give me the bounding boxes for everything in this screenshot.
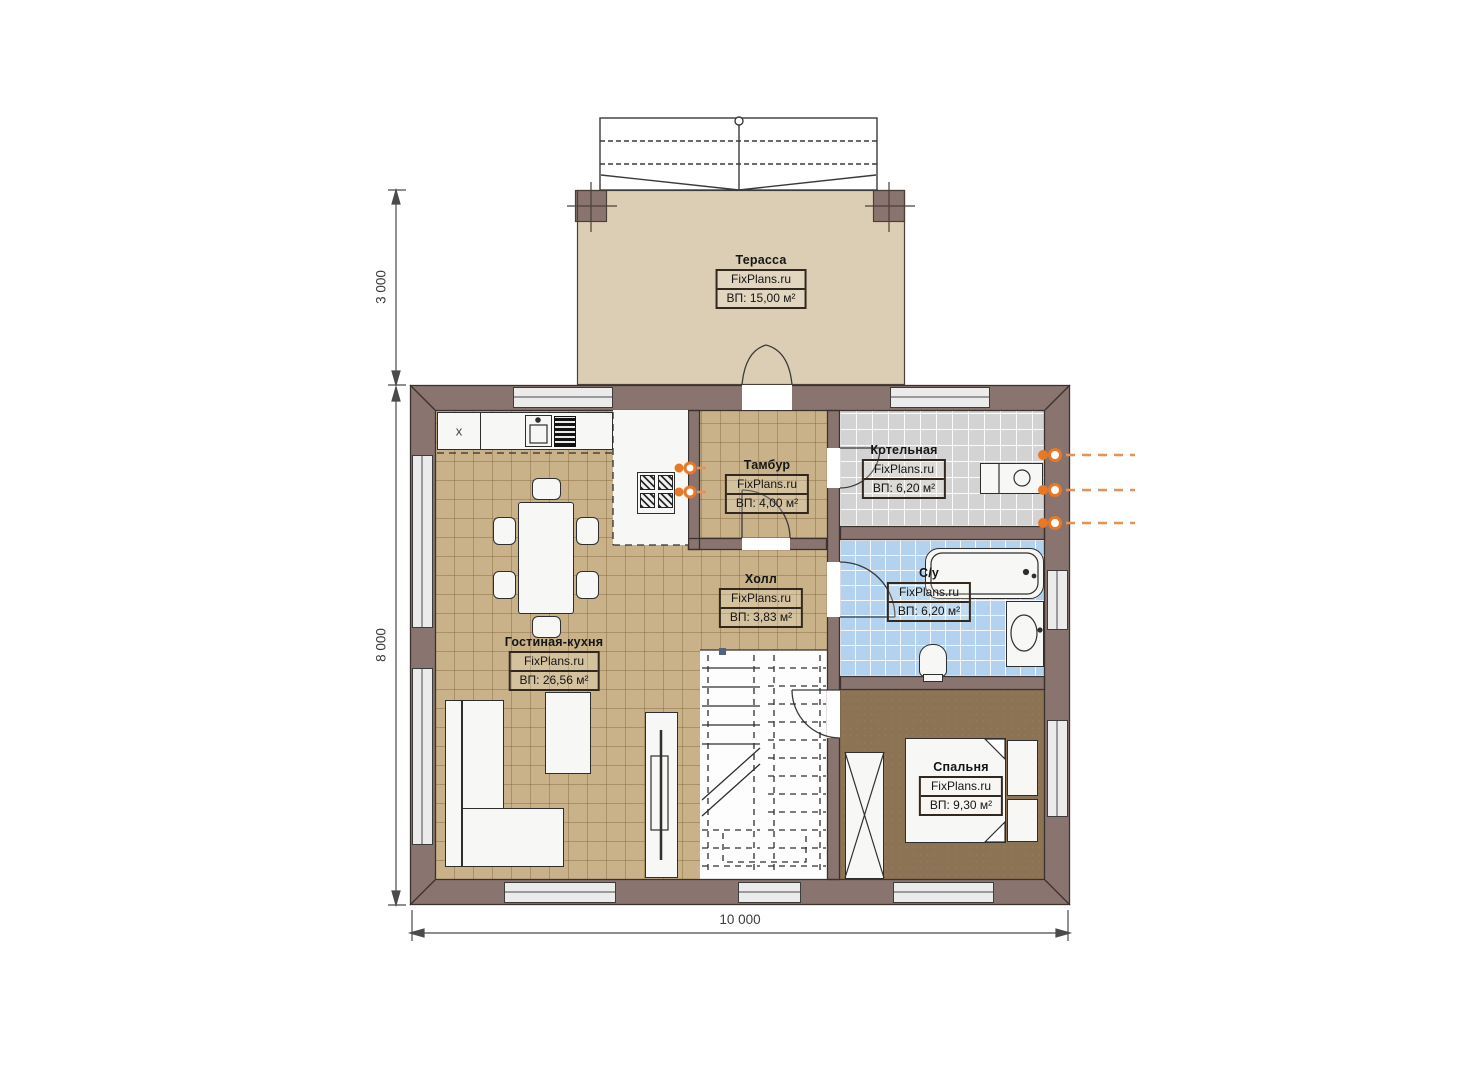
wall-tambour-hall-right — [790, 538, 827, 550]
window-right-bathroom — [1047, 570, 1068, 630]
sink-counter — [1006, 601, 1044, 667]
room-area: ВП: 3,83 м² — [721, 607, 801, 626]
entrance-door-opening — [742, 385, 792, 410]
window-bottom-stairs — [738, 882, 801, 903]
window-bottom-living — [504, 882, 616, 903]
window-top-boiler — [890, 387, 990, 408]
roof-outline — [600, 117, 877, 190]
wall-boiler-bathroom — [840, 526, 1045, 540]
chair — [493, 571, 516, 599]
room-info-box: FixPlans.ru ВП: 9,30 м² — [919, 776, 1003, 816]
wall-tambour-hall-left — [688, 538, 742, 550]
chair — [493, 517, 516, 545]
chair — [532, 478, 561, 500]
room-name: Тамбур — [725, 458, 809, 472]
toilet-base — [923, 674, 943, 682]
boiler-unit — [980, 463, 1043, 494]
sofa-back — [445, 700, 462, 867]
dimension-house-depth: 8 000 — [374, 628, 389, 662]
kitchen-sink — [525, 415, 552, 447]
room-name: Терасса — [716, 253, 807, 267]
coffee-table — [545, 692, 591, 774]
room-area: ВП: 6,20 м² — [864, 478, 944, 497]
room-info-box: FixPlans.ru ВП: 26,56 м² — [509, 651, 600, 691]
staircase-floor — [700, 650, 827, 880]
floor-plan: x — [0, 0, 1473, 1080]
dishwasher-appliance — [554, 416, 576, 447]
sofa-seat — [462, 700, 504, 810]
boiler-door-opening — [827, 448, 840, 488]
window-top-kitchen — [513, 387, 613, 408]
brand-watermark: FixPlans.ru — [511, 653, 598, 670]
dimension-house-width: 10 000 — [719, 912, 760, 927]
room-label-bedroom: Спальня FixPlans.ru ВП: 9,30 м² — [919, 760, 1003, 816]
wall-kitchen-tambour — [688, 410, 700, 550]
chair — [576, 517, 599, 545]
tv-stand — [645, 712, 678, 878]
wardrobe — [845, 752, 884, 879]
sofa-chaise — [462, 808, 564, 867]
chair — [576, 571, 599, 599]
toilet — [919, 644, 947, 677]
room-name: Спальня — [919, 760, 1003, 774]
brand-watermark: FixPlans.ru — [889, 584, 969, 601]
room-label-tambour: Тамбур FixPlans.ru ВП: 4,00 м² — [725, 458, 809, 514]
terrace-post-left — [575, 190, 607, 222]
cabinet-cross-mark: x — [456, 424, 463, 439]
stove-burner — [640, 475, 655, 490]
window-bottom-bedroom — [893, 882, 994, 903]
room-info-box: FixPlans.ru ВП: 15,00 м² — [716, 269, 807, 309]
room-name: С/у — [887, 566, 971, 580]
brand-watermark: FixPlans.ru — [727, 476, 807, 493]
brand-watermark: FixPlans.ru — [921, 778, 1001, 795]
stove-burner — [640, 493, 655, 508]
room-label-boiler: Котельная FixPlans.ru ВП: 6,20 м² — [862, 443, 946, 499]
room-area: ВП: 4,00 м² — [727, 493, 807, 512]
nightstand — [1007, 740, 1038, 796]
window-left-upper — [412, 455, 433, 628]
room-label-hall: Холл FixPlans.ru ВП: 3,83 м² — [719, 572, 803, 628]
stove-burner — [658, 493, 673, 508]
room-area: ВП: 15,00 м² — [718, 288, 805, 307]
room-label-bathroom: С/у FixPlans.ru ВП: 6,20 м² — [887, 566, 971, 622]
room-label-living-kitchen: Гостиная-кухня FixPlans.ru ВП: 26,56 м² — [505, 635, 604, 691]
room-info-box: FixPlans.ru ВП: 6,20 м² — [887, 582, 971, 622]
terrace-post-right — [873, 190, 905, 222]
room-area: ВП: 9,30 м² — [921, 795, 1001, 814]
nightstand — [1007, 799, 1038, 842]
room-info-box: FixPlans.ru ВП: 6,20 м² — [862, 459, 946, 499]
dimension-terrace-depth: 3 000 — [374, 270, 389, 304]
room-info-box: FixPlans.ru ВП: 3,83 м² — [719, 588, 803, 628]
window-right-bedroom — [1047, 720, 1068, 817]
brand-watermark: FixPlans.ru — [864, 461, 944, 478]
bathroom-door-opening — [827, 562, 840, 617]
bedroom-door-opening — [827, 690, 840, 738]
stove-burner — [658, 475, 673, 490]
room-name: Гостиная-кухня — [505, 635, 604, 649]
room-name: Холл — [719, 572, 803, 586]
room-area: ВП: 6,20 м² — [889, 601, 969, 620]
dining-table — [518, 502, 574, 614]
room-info-box: FixPlans.ru ВП: 4,00 м² — [725, 474, 809, 514]
brand-watermark: FixPlans.ru — [721, 590, 801, 607]
tambour-door-opening — [742, 538, 790, 550]
brand-watermark: FixPlans.ru — [718, 271, 805, 288]
room-area: ВП: 26,56 м² — [511, 670, 598, 689]
room-name: Котельная — [862, 443, 946, 457]
window-left-lower — [412, 668, 433, 845]
room-label-terrace: Терасса FixPlans.ru ВП: 15,00 м² — [716, 253, 807, 309]
